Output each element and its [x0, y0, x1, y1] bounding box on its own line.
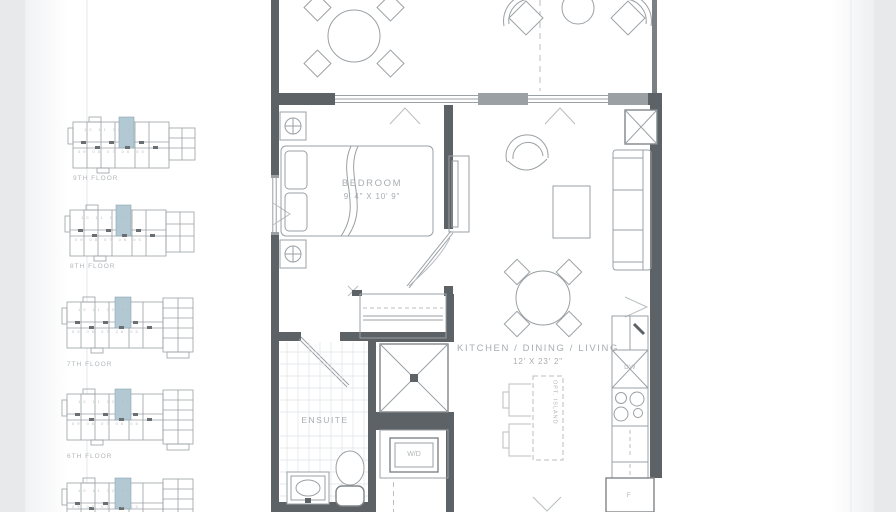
slider-door-mark-living — [545, 108, 575, 124]
nightstand-lamp-bottom — [280, 240, 306, 268]
bedroom-dims: 9' 4" X 10' 9" — [344, 193, 400, 201]
floorplan-drawing — [0, 0, 896, 512]
keyplan-unit-numbers: 10 11 02 03 — [78, 400, 132, 404]
bedroom-label: BEDROOM — [342, 179, 402, 189]
range — [612, 388, 648, 426]
keyplan-9th-floor — [68, 117, 195, 173]
kitchen-counter — [612, 426, 648, 478]
keyplan-unit-numbers: 10 11 02 03 — [81, 216, 135, 220]
island-stool — [503, 384, 531, 416]
toilet — [336, 451, 364, 506]
coffee-table — [553, 186, 590, 238]
lounge-chair — [506, 135, 548, 170]
living-furniture — [449, 110, 657, 270]
keyplan-unit-numbers: 10 11 02 03 — [78, 308, 132, 312]
main-room-label: KITCHEN / DINING / LIVING — [457, 344, 619, 354]
floor-label-8th: 8TH FLOOR — [70, 264, 115, 271]
ensuite-door — [299, 337, 349, 387]
keyplan-unit-numbers: 10 11 02 03 — [84, 128, 138, 132]
keyplan-8th-floor — [65, 205, 194, 261]
island-label: OPT. ISLAND — [551, 380, 557, 425]
ensuite-label: ENSUITE — [301, 416, 348, 425]
balcony-dining-table — [304, 0, 404, 77]
shaft-column-top-right — [625, 110, 657, 144]
bedroom-door — [407, 231, 453, 288]
fridge-label: F — [627, 493, 631, 500]
nightstand-lamp-top — [280, 112, 306, 140]
bedroom-furniture — [280, 112, 433, 268]
keyplan-unit-numbers: 10 11 02 03 — [78, 489, 132, 493]
vanity-sink — [287, 472, 329, 504]
balcony-side-table — [562, 0, 594, 24]
keyplan-unit-numbers: 09 08 07 06 05 — [78, 150, 147, 154]
keyplan-unit-numbers: 09 08 07 06 05 — [72, 505, 141, 509]
floorplan-page: 9TH FLOOR 8TH FLOOR 7TH FLOOR 6TH FLOOR … — [0, 0, 896, 512]
washer-dryer — [380, 430, 448, 512]
sofa — [613, 150, 651, 270]
dining-table — [504, 259, 581, 336]
floor-label-9th: 9TH FLOOR — [73, 176, 118, 183]
balcony — [271, 0, 657, 93]
floor-label-6th: 6TH FLOOR — [67, 454, 112, 461]
dishwasher-label: DW — [624, 365, 636, 372]
island-stool — [503, 424, 531, 456]
keyplan-unit-numbers: 09 08 07 06 05 — [72, 422, 141, 426]
washer-dryer-label: W/D — [407, 451, 421, 458]
keyplan-unit-numbers: 09 08 07 06 05 — [75, 238, 144, 242]
slider-door-mark-bedroom — [390, 108, 420, 124]
tv-console — [449, 156, 469, 232]
door-swing-mark-right — [625, 297, 647, 317]
bed — [281, 146, 433, 236]
main-room-dims: 12' X 23' 2" — [513, 358, 563, 366]
floor-label-7th: 7TH FLOOR — [67, 362, 112, 369]
dimension-mark-bottom — [533, 497, 561, 511]
keyplan-unit-numbers: 09 08 07 06 05 — [72, 330, 141, 334]
shaft-column — [380, 344, 448, 412]
balcony-lounge-chairs — [504, 0, 652, 35]
closet — [360, 294, 446, 338]
